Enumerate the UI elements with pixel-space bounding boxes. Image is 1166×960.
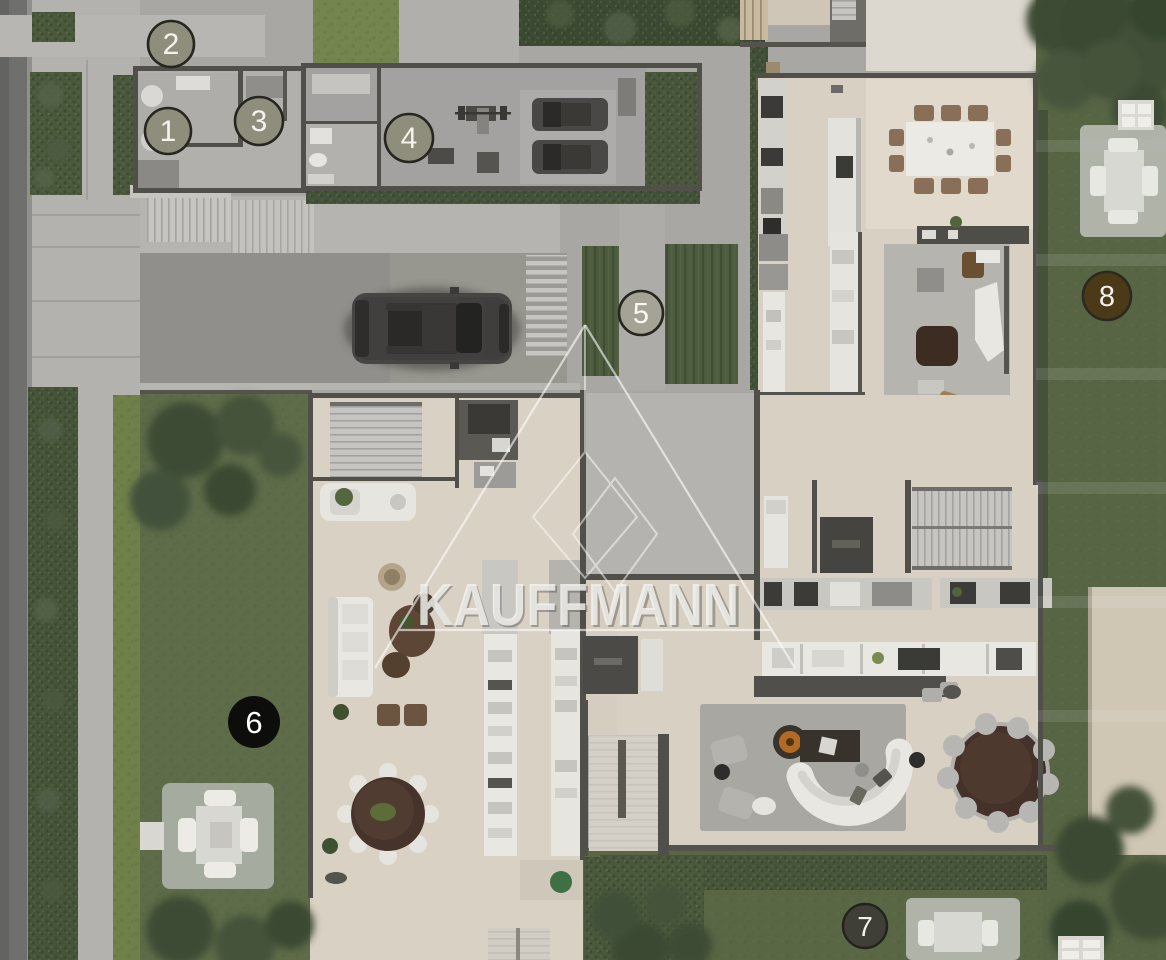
svg-text:8: 8 bbox=[1099, 281, 1115, 313]
svg-text:KAUFFMANN: KAUFFMANN bbox=[417, 572, 739, 638]
svg-text:1: 1 bbox=[160, 115, 177, 148]
svg-text:3: 3 bbox=[251, 105, 268, 138]
svg-text:7: 7 bbox=[857, 911, 873, 942]
svg-text:4: 4 bbox=[401, 122, 418, 155]
svg-text:6: 6 bbox=[245, 705, 262, 740]
svg-text:2: 2 bbox=[163, 28, 180, 61]
svg-text:5: 5 bbox=[633, 298, 649, 330]
